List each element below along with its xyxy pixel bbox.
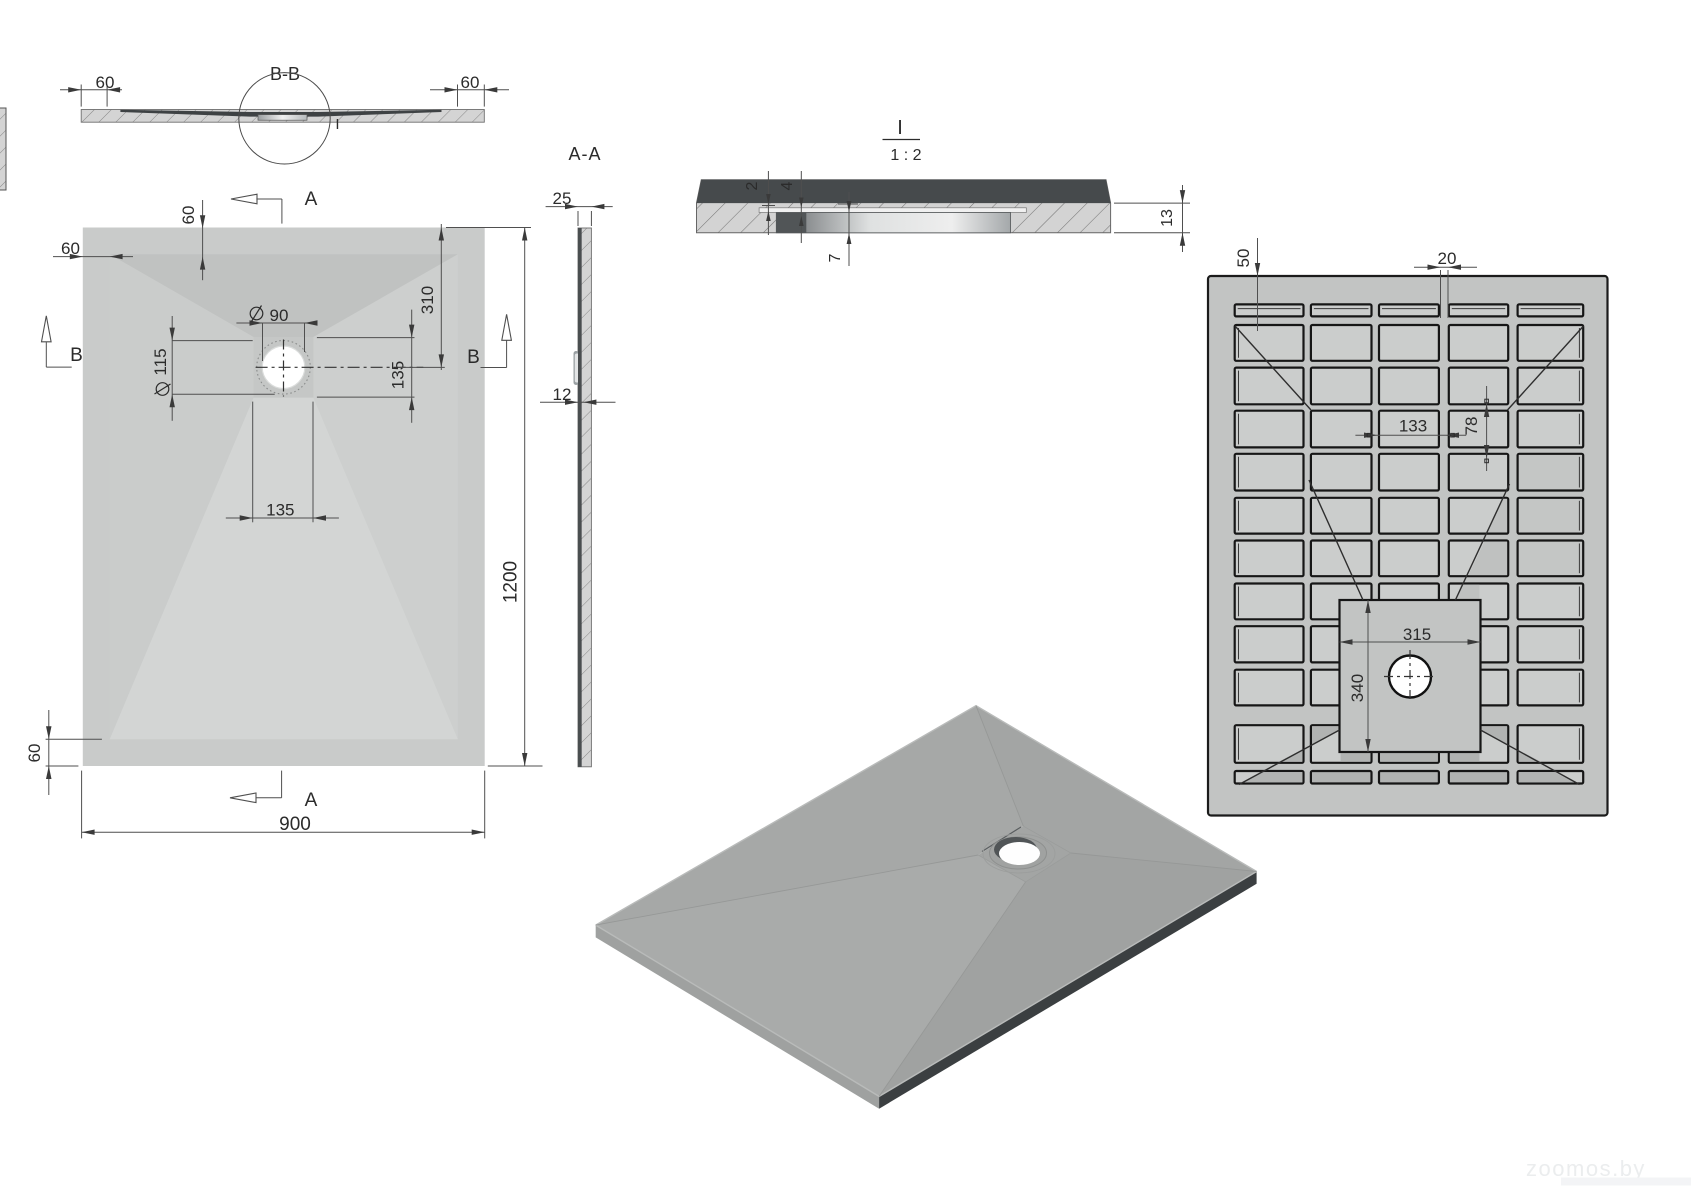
svg-text:340: 340	[1348, 674, 1367, 702]
svg-text:13: 13	[1159, 209, 1176, 227]
svg-text:4: 4	[779, 181, 796, 190]
svg-text:115: 115	[151, 348, 170, 375]
svg-text:1 : 2: 1 : 2	[890, 147, 921, 164]
svg-text:135: 135	[266, 501, 294, 520]
svg-text:60: 60	[61, 239, 80, 258]
svg-text:zoomos.by: zoomos.by	[1526, 1156, 1646, 1181]
svg-text:310: 310	[418, 286, 437, 314]
svg-text:I: I	[897, 117, 903, 139]
svg-text:20: 20	[1438, 249, 1457, 268]
svg-text:60: 60	[461, 73, 480, 92]
svg-text:1200: 1200	[501, 561, 522, 603]
svg-text:133: 133	[1399, 417, 1427, 436]
svg-text:25: 25	[553, 189, 572, 208]
svg-text:I: I	[335, 116, 339, 133]
svg-text:900: 900	[279, 814, 311, 835]
svg-text:78: 78	[1462, 417, 1481, 436]
svg-text:2: 2	[744, 181, 761, 190]
svg-text:135: 135	[389, 361, 408, 389]
svg-text:60: 60	[96, 73, 115, 92]
svg-text:90: 90	[270, 306, 289, 325]
svg-text:60: 60	[179, 206, 198, 225]
svg-text:B: B	[70, 345, 83, 366]
svg-text:60: 60	[25, 744, 44, 763]
svg-text:B: B	[467, 347, 480, 368]
svg-text:A-A: A-A	[568, 144, 601, 164]
svg-text:12: 12	[553, 385, 572, 404]
svg-text:315: 315	[1403, 625, 1431, 644]
svg-text:A: A	[305, 189, 318, 210]
svg-text:50: 50	[1234, 249, 1253, 268]
svg-text:A: A	[305, 790, 318, 811]
svg-text:7: 7	[827, 253, 844, 262]
